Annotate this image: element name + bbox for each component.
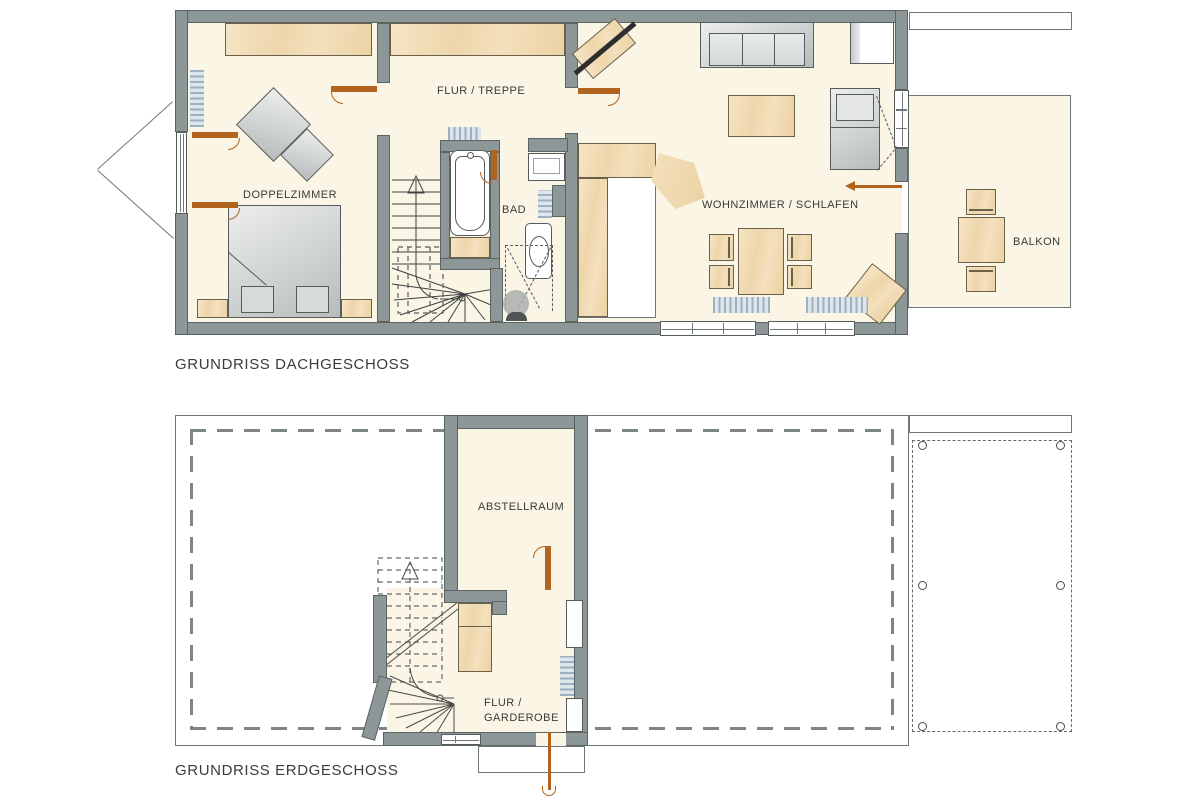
room-label-bath: BAD	[502, 204, 526, 216]
wall	[552, 185, 566, 217]
radiator	[190, 70, 204, 127]
window	[441, 734, 481, 745]
entrance-door-arrow	[548, 732, 551, 790]
radiator	[713, 297, 770, 313]
closet	[578, 143, 656, 178]
wall	[574, 415, 588, 745]
dining-table	[738, 228, 784, 295]
room-label-hall-line1: FLUR /	[484, 697, 522, 709]
wall	[377, 135, 390, 322]
roof-edge-strip	[909, 12, 1072, 30]
support-post	[1056, 722, 1065, 731]
single-bed	[830, 88, 880, 170]
radiator	[448, 127, 481, 140]
bed-pillow	[836, 94, 874, 121]
sofa	[700, 22, 814, 68]
pillow	[296, 286, 329, 313]
wall	[565, 133, 578, 322]
room-label-hall: FLUR / TREPPE	[437, 85, 525, 97]
balcony-chair	[966, 266, 996, 292]
support-post	[918, 722, 927, 731]
nightstand	[341, 299, 372, 318]
gable-line	[97, 170, 174, 239]
room-label-hall-line2: GARDEROBE	[484, 712, 559, 724]
glazed-door-panel	[176, 132, 187, 214]
shower-drain-base	[506, 312, 527, 321]
wall	[490, 268, 503, 322]
bathtub-basin	[455, 156, 485, 231]
roof-edge-strip	[909, 415, 1072, 433]
floor-plan-canvas: FLUR / TREPPE DOPPELZIMMER BAD WOHNZIMME…	[0, 0, 1200, 800]
balcony-door-arrow	[854, 185, 902, 188]
entrance-step	[478, 746, 585, 773]
balcony-above-outline	[912, 440, 1072, 732]
wardrobe	[458, 603, 492, 672]
ground-plan-title: GRUNDRISS ERDGESCHOSS	[175, 762, 398, 779]
sink	[528, 153, 565, 181]
sink-basin	[533, 158, 560, 174]
cabinet-side	[851, 23, 860, 63]
footprint-dashed-line	[190, 429, 193, 730]
room-label-balcony: BALKON	[1013, 236, 1061, 248]
gable-line	[97, 101, 173, 169]
entrance-door-swing	[542, 786, 556, 796]
closet	[578, 178, 608, 317]
wall	[895, 10, 908, 90]
bath-shelf	[450, 237, 490, 258]
wall	[377, 23, 390, 83]
cabinet	[850, 22, 894, 64]
coffee-table	[728, 95, 795, 137]
support-post	[1056, 581, 1065, 590]
radiator	[806, 297, 868, 313]
support-post	[918, 581, 927, 590]
wall	[175, 213, 188, 335]
support-post	[1056, 441, 1065, 450]
footprint-dashed-line	[891, 429, 894, 730]
sofa-seats	[709, 33, 805, 66]
dining-chair	[709, 234, 734, 261]
wall	[528, 138, 568, 152]
wall	[440, 152, 450, 262]
attic-plan-title: GRUNDRISS DACHGESCHOSS	[175, 356, 410, 373]
wall	[492, 601, 507, 615]
wall	[175, 10, 188, 132]
room-label-storage: ABSTELLRAUM	[478, 501, 564, 513]
dining-chair	[709, 265, 734, 289]
faucet-icon	[467, 152, 474, 159]
pillow	[241, 286, 274, 313]
balcony-table	[958, 217, 1005, 263]
balcony-door-arrowhead	[845, 181, 855, 191]
radiator	[538, 190, 552, 218]
support-post	[918, 441, 927, 450]
dining-chair	[787, 234, 812, 261]
bathtub	[450, 150, 490, 236]
wardrobe	[225, 23, 372, 56]
window	[660, 321, 756, 336]
wall	[373, 595, 387, 683]
wall-niche	[566, 600, 583, 648]
wall-niche	[566, 698, 583, 732]
wall	[895, 148, 908, 182]
room-label-living: WOHNZIMMER / SCHLAFEN	[702, 199, 859, 211]
nightstand	[197, 299, 228, 318]
wall	[444, 415, 458, 591]
dining-chair	[787, 265, 812, 289]
wall	[444, 415, 588, 429]
balcony-window	[894, 90, 909, 148]
room-label-bedroom: DOPPELZIMMER	[243, 189, 337, 201]
radiator	[560, 656, 574, 696]
door-leaf	[545, 546, 551, 590]
entrance-opening	[536, 733, 566, 746]
balcony-chair	[966, 189, 996, 215]
wardrobe	[390, 23, 565, 56]
window	[768, 321, 855, 336]
